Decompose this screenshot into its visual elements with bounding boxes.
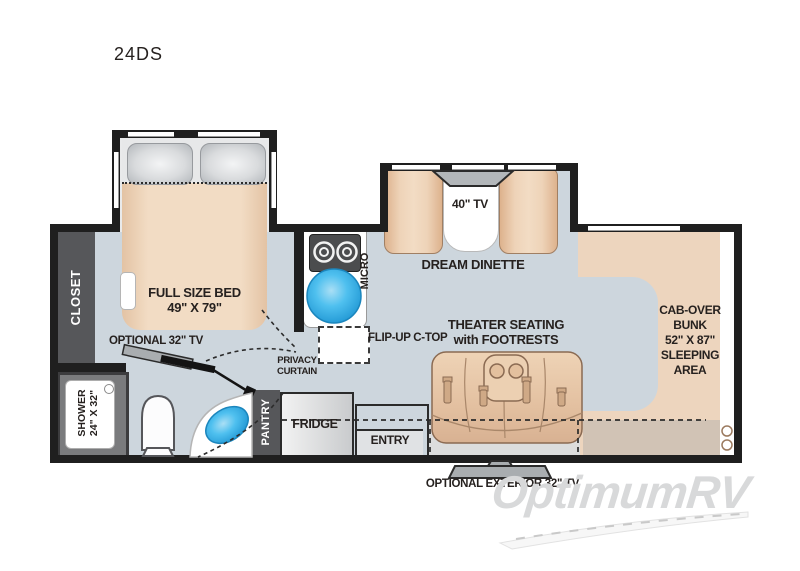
stove-burners: [315, 243, 357, 262]
bed-label-line2: 49" X 79": [122, 301, 267, 316]
entry-label: ENTRY: [356, 434, 424, 448]
dinette-tv: [433, 171, 513, 186]
dream-dinette-label: DREAM DINETTE: [400, 258, 546, 273]
cab-step-detail: [722, 426, 732, 450]
shower-label-line1: SHOWER: [76, 379, 88, 447]
theater-label: THEATER SEATING with FOOTRESTS: [430, 318, 582, 347]
cab-over-bunk-label: CAB-OVER BUNK 52" X 87" SLEEPING AREA: [648, 303, 732, 378]
closet-label: CLOSET: [68, 232, 83, 363]
privacy-label-line1: PRIVACY: [268, 355, 326, 366]
bed-label: FULL SIZE BED 49" X 79": [122, 286, 267, 316]
toilet: [142, 396, 174, 456]
bunk-label-line5: AREA: [648, 363, 732, 378]
pantry-label: PANTRY: [260, 389, 272, 455]
kitchen-sink: [307, 269, 361, 323]
micro-label: MICRO: [359, 236, 371, 306]
bathroom-door: [210, 368, 249, 392]
page-title: 24DS: [114, 44, 163, 65]
bed-label-line1: FULL SIZE BED: [122, 286, 267, 301]
floorplan-page: 24DS CLOSET PANTRY MICRO SHOWER 24" X 32…: [0, 0, 800, 571]
bunk-label-line2: BUNK: [648, 318, 732, 333]
privacy-curtain-label: PRIVACY CURTAIN: [268, 355, 326, 377]
dinette-tv-label: 40" TV: [438, 198, 502, 212]
shower-label: SHOWER 24" X 32": [76, 379, 100, 447]
optional-tv-label: OPTIONAL 32" TV: [104, 335, 208, 348]
theater-label-line2: with FOOTRESTS: [430, 333, 582, 348]
bunk-label-line1: CAB-OVER: [648, 303, 732, 318]
theater-label-line1: THEATER SEATING: [430, 318, 582, 333]
shower-label-line2: 24" X 32": [88, 379, 100, 447]
bunk-label-line3: 52" X 87": [648, 333, 732, 348]
bunk-label-line4: SLEEPING: [648, 348, 732, 363]
watermark-text: OptimumRV: [489, 466, 765, 519]
privacy-label-line2: CURTAIN: [268, 366, 326, 377]
fridge-label: FRIDGE: [281, 417, 349, 431]
theater-seating: [432, 352, 582, 443]
